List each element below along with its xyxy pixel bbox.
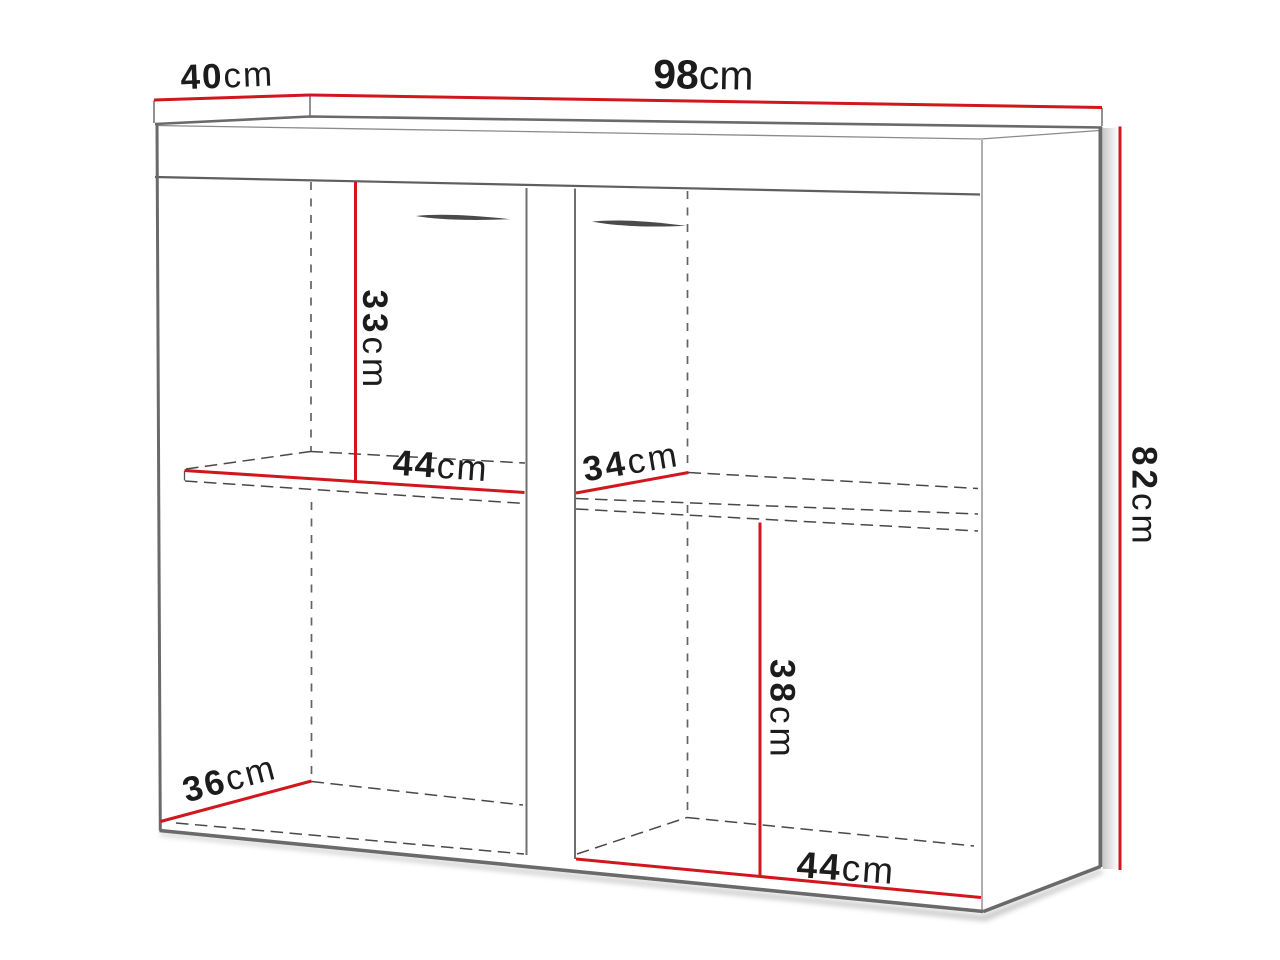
svg-text:82cm: 82cm [1125,446,1164,548]
svg-text:44cm: 44cm [391,442,490,490]
svg-text:98cm: 98cm [653,51,754,99]
svg-text:36cm: 36cm [178,748,280,810]
svg-text:44cm: 44cm [795,844,896,892]
svg-text:34cm: 34cm [580,435,683,490]
svg-text:40cm: 40cm [180,55,275,98]
svg-text:38cm: 38cm [763,659,802,761]
svg-text:33cm: 33cm [355,290,394,392]
